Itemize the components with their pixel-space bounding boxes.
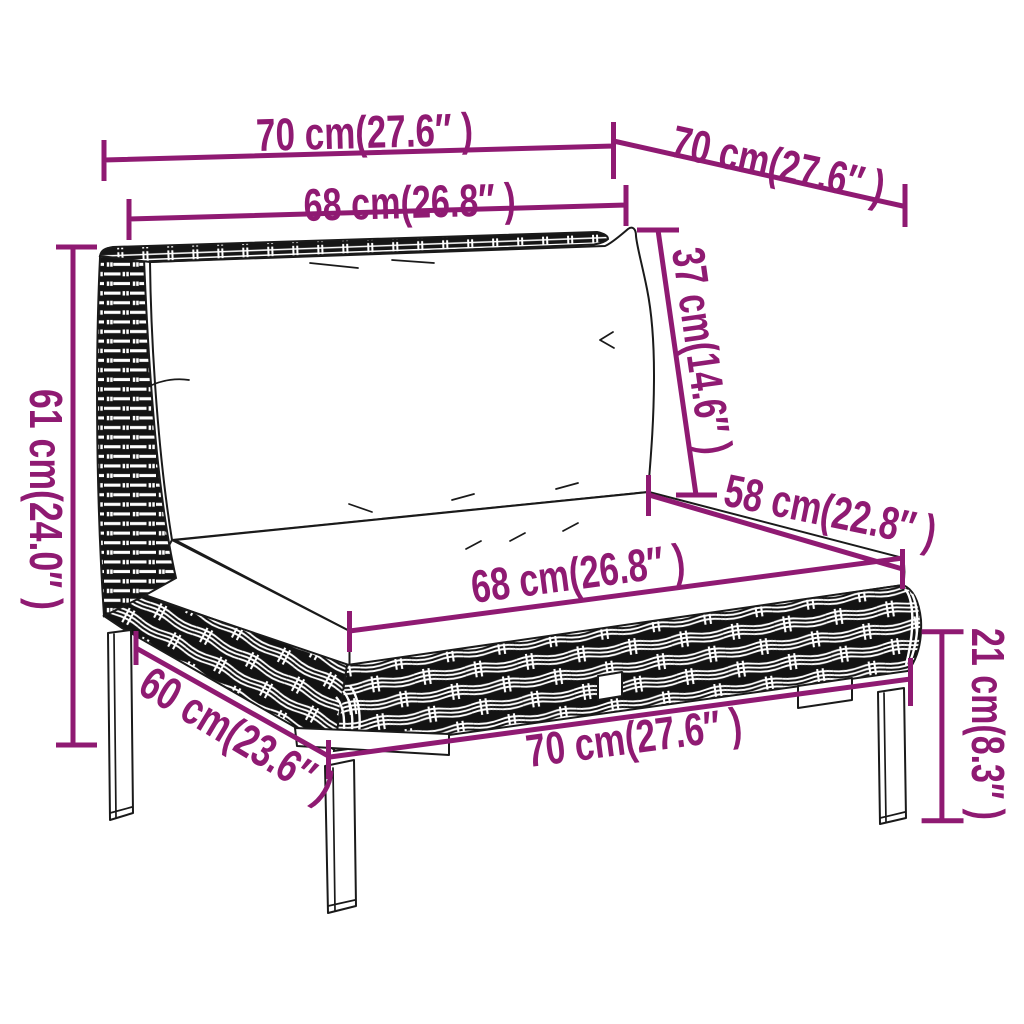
svg-text:21 cm(8.3″ ): 21 cm(8.3″ ) xyxy=(962,628,1014,820)
svg-text:68 cm(26.8″ ): 68 cm(26.8″ ) xyxy=(303,173,516,231)
svg-text:61 cm(24.0″ ): 61 cm(24.0″ ) xyxy=(20,389,72,610)
svg-text:70 cm(27.6″ ): 70 cm(27.6″ ) xyxy=(255,103,473,161)
